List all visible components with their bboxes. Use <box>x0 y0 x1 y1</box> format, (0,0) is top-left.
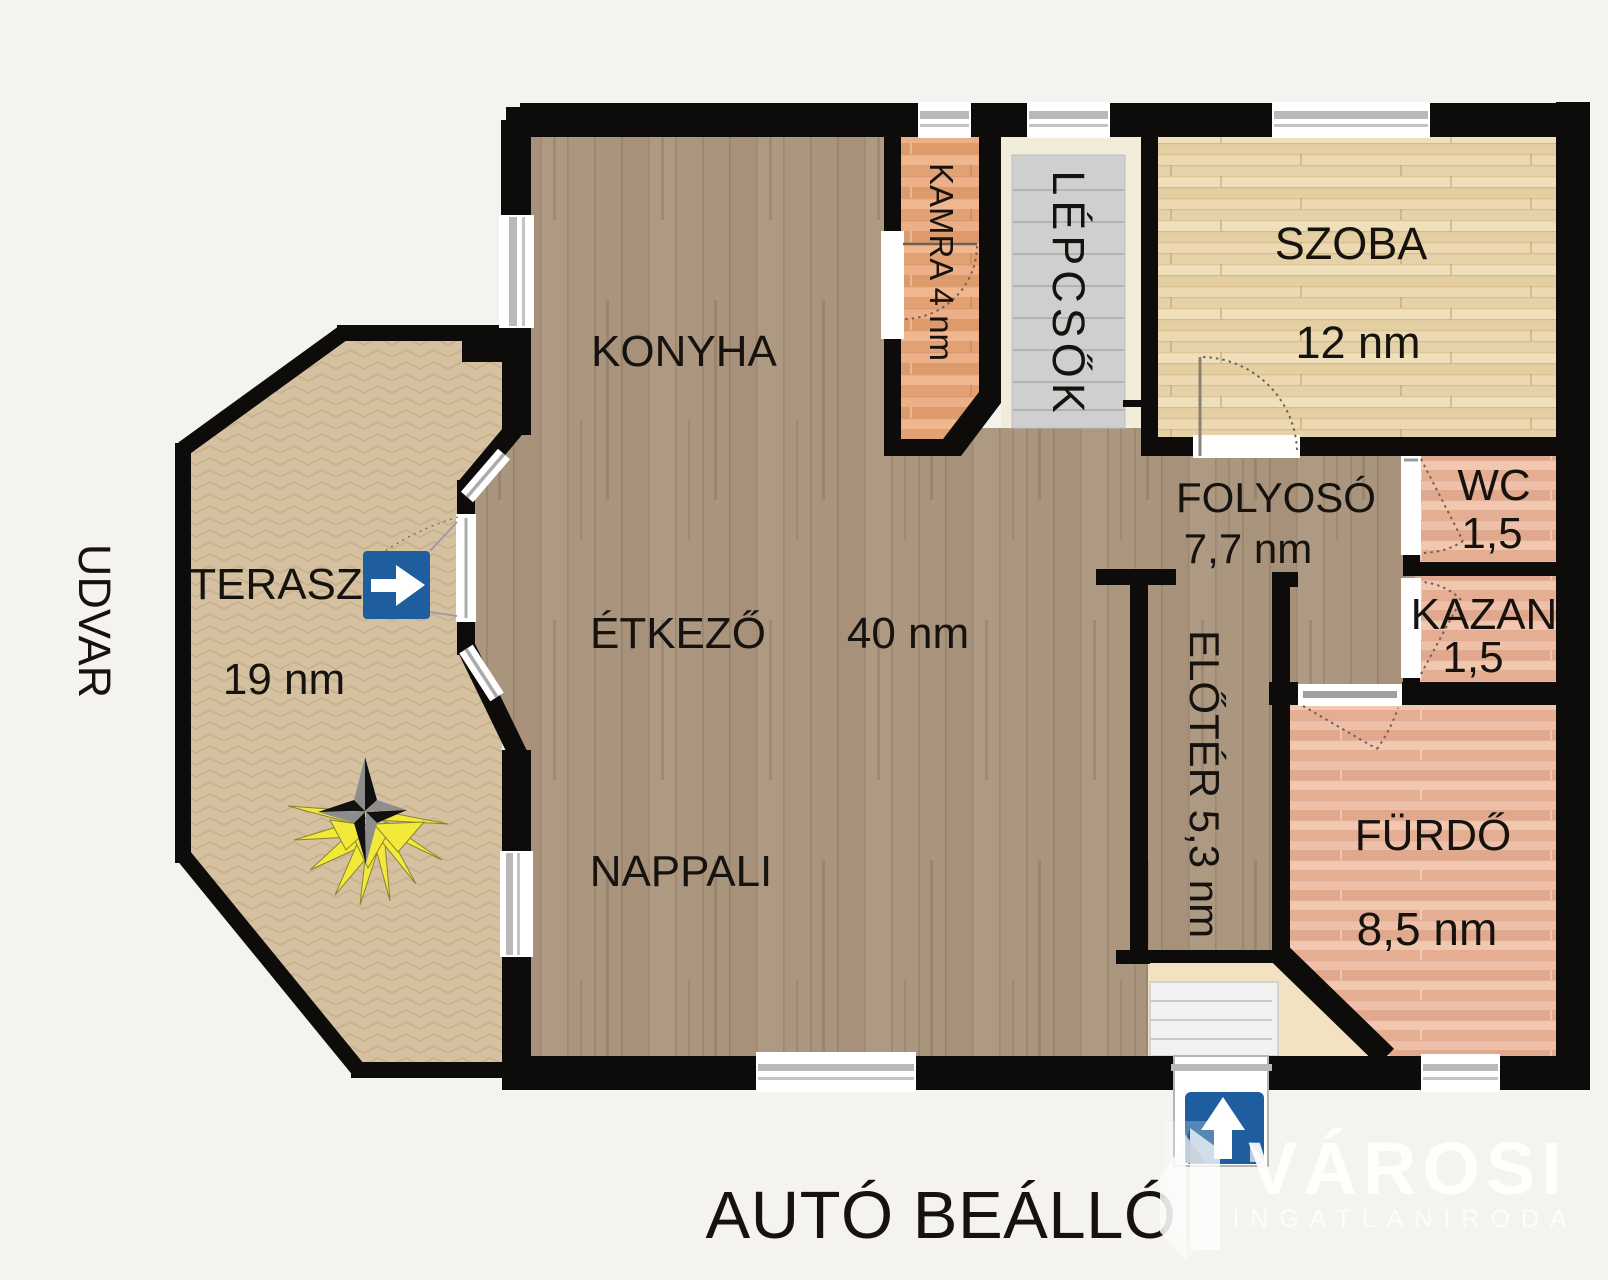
svg-text:INGATLANIRODA: INGATLANIRODA <box>1232 1205 1577 1233</box>
svg-text:KAMRA 4 nm: KAMRA 4 nm <box>923 163 960 361</box>
svg-text:FOLYOSÓ: FOLYOSÓ <box>1176 474 1376 521</box>
svg-text:1,5: 1,5 <box>1442 633 1503 682</box>
svg-text:1,5: 1,5 <box>1461 509 1522 558</box>
svg-text:FÜRDŐ: FÜRDŐ <box>1355 811 1511 860</box>
svg-text:SZOBA: SZOBA <box>1275 218 1428 269</box>
svg-text:AUTÓ BEÁLLÓ: AUTÓ BEÁLLÓ <box>706 1178 1177 1253</box>
svg-text:8,5 nm: 8,5 nm <box>1357 903 1498 955</box>
svg-text:ÉTKEZŐ: ÉTKEZŐ <box>590 609 766 658</box>
svg-text:ELŐTÉR 5,3 nm: ELŐTÉR 5,3 nm <box>1181 630 1228 938</box>
svg-text:KAZAN: KAZAN <box>1411 590 1558 639</box>
svg-text:19 nm: 19 nm <box>223 655 345 704</box>
svg-text:12 nm: 12 nm <box>1295 317 1420 368</box>
svg-text:TERASZ: TERASZ <box>189 560 363 609</box>
svg-text:LÉPCSŐK: LÉPCSŐK <box>1043 170 1094 418</box>
svg-text:40 nm: 40 nm <box>847 609 969 658</box>
svg-text:UDVAR: UDVAR <box>69 544 120 698</box>
svg-text:7,7 nm: 7,7 nm <box>1184 525 1312 572</box>
svg-text:KONYHA: KONYHA <box>591 327 777 376</box>
svg-text:VÁROSI: VÁROSI <box>1248 1127 1568 1210</box>
svg-text:NAPPALI: NAPPALI <box>590 847 773 896</box>
svg-text:WC: WC <box>1457 461 1530 510</box>
